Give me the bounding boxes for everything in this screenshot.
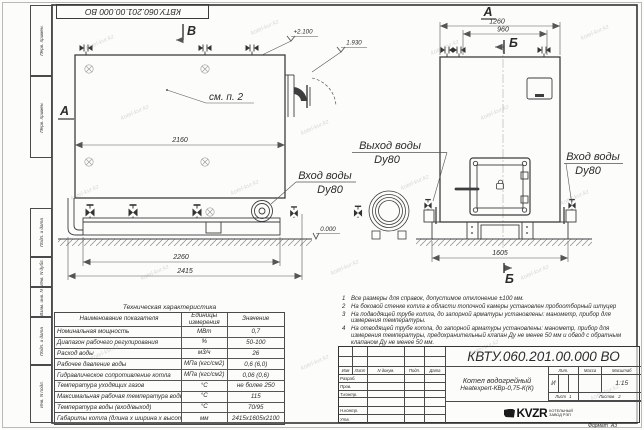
format-strip: Формат А3 xyxy=(588,423,638,429)
product-title: Котел водогрейный Heatexpert-КВр-0,75-К(… xyxy=(445,367,548,401)
margin-box-vzam-inv: Взам. инв. N xyxy=(30,287,52,317)
row-units: °С xyxy=(182,403,228,413)
tech-characteristics-table: Техническая характеристика Наименование … xyxy=(54,303,285,425)
kvzr-logo-icon xyxy=(504,409,515,418)
note-number: 3 xyxy=(342,312,351,326)
elevation-0000: 0.000 xyxy=(320,226,336,233)
product-model: Heatexpert-КВр-0,75-К(К) xyxy=(460,385,533,392)
margin-label: Подп. и дата xyxy=(39,327,44,356)
note-number: 4 xyxy=(342,326,351,346)
sheet-value: 1 xyxy=(569,394,571,399)
organization-cell: KVZR КОТЕЛЬНЫЙ ЗАВОД РЭП xyxy=(445,401,641,424)
air-vent-icon xyxy=(453,47,466,58)
fan-front-view xyxy=(369,191,409,239)
col-data: Дата xyxy=(425,367,445,375)
row-label: Т.контр. xyxy=(339,391,368,398)
dim-2415: 2415 xyxy=(176,268,193,275)
section-letter-b-bottom: Б xyxy=(505,272,514,286)
row-name: Расход воды xyxy=(55,349,182,359)
lifting-lug-icon xyxy=(206,208,214,216)
water-inlet-stub-front xyxy=(564,200,576,224)
view-letter-a: А xyxy=(482,5,492,19)
boiler-body-side xyxy=(75,55,285,198)
row-label: Н.контр. xyxy=(339,407,368,415)
inspection-hatch xyxy=(527,78,552,99)
notes-list: 1Все размеры для справок, допустимое отк… xyxy=(342,296,628,348)
product-name: Котел водогрейный xyxy=(463,376,531,385)
inlet-label-front: Вход воды xyxy=(566,151,619,163)
row-value: 0,06 (0,6) xyxy=(228,370,285,380)
table-row: Габариты котла (длина х ширина х высота)… xyxy=(55,413,284,424)
top-stamp-number: КВТУ.060.201.00.000 ВО xyxy=(85,7,181,17)
drain-valve-icon xyxy=(193,205,202,218)
format-label: Формат xyxy=(588,423,608,429)
dim-2160: 2160 xyxy=(171,137,188,144)
scale-value: 1:15 xyxy=(602,375,641,393)
row-name: Габариты котла (длина х ширина х высота) xyxy=(55,413,182,424)
note-text: На подводящей трубе котла, до запорной а… xyxy=(351,312,628,326)
row-units: % xyxy=(182,338,228,348)
pipe-valve-icon xyxy=(354,206,362,218)
col-header-value: Значение xyxy=(228,313,285,326)
section-mark-b-top xyxy=(495,40,504,54)
top-rotated-stamp: КВТУ.060.201.00.000 ВО xyxy=(56,4,209,19)
row-value: не более 250 xyxy=(228,381,285,391)
row-units: °С xyxy=(182,392,228,402)
margin-label: Инв. N дубл. xyxy=(39,259,44,286)
drain-valve-icon xyxy=(86,205,95,218)
signature-row-utv: Утв. xyxy=(339,415,445,424)
logo-sub-line: ЗАВОД РЭП xyxy=(549,413,573,417)
table-row: Расход водым3/ч26 xyxy=(55,349,284,360)
title-block: КВТУ.060.201.00.000 ВО Изм Лист N докум.… xyxy=(338,346,640,423)
inlet-dn-side: Dy80 xyxy=(317,184,344,196)
water-outlet-stub-front xyxy=(424,200,436,224)
row-units: мм xyxy=(182,413,228,424)
lifting-lug-icon xyxy=(201,158,209,166)
elevation-mark-top xyxy=(262,36,318,55)
row-units: МПа (кгс/см2) xyxy=(182,359,228,369)
note-item: 4На отводящей трубе котла, до запорной а… xyxy=(342,326,628,346)
margin-box-podp-data-2: Подп. и дата xyxy=(30,317,52,365)
lit-value: И xyxy=(549,375,559,393)
see-item-note: см. п. 2 xyxy=(209,92,243,103)
dim-960: 960 xyxy=(497,27,509,34)
section-letter-b-top: Б xyxy=(509,36,518,50)
row-value: 50-100 xyxy=(228,338,285,348)
margin-label: Инв. N подл. xyxy=(39,381,44,408)
sheets-value: 2 xyxy=(618,394,620,399)
water-inlet-callout-side xyxy=(271,182,356,204)
ground-line xyxy=(58,239,592,246)
table-row: Температура воды (вход/выход)°С70/95 xyxy=(55,403,284,414)
note-text: Все размеры для справок, допустимое откл… xyxy=(351,296,628,303)
lifting-lug-icon xyxy=(201,65,209,73)
signature-row-razrab: Разраб. xyxy=(339,375,445,383)
col-header-name: Наименование показателя xyxy=(55,313,182,326)
note-item: 3На подводящей трубе котла, до запорной … xyxy=(342,312,628,326)
row-name: Номинальная мощность xyxy=(55,327,182,337)
lifting-lug-icon xyxy=(85,65,93,73)
note-text: На отводящей трубе котла, до запорной ар… xyxy=(351,326,628,346)
col-podp: Подп. xyxy=(405,367,425,375)
lifting-lug-icon xyxy=(85,158,93,166)
col-ndok: N докум. xyxy=(368,367,405,375)
dim-1605: 1605 xyxy=(492,250,508,257)
note-item: 2На боковой стенке котла в области топоч… xyxy=(342,304,628,311)
row-value: 2415х1605х2100 xyxy=(228,413,285,424)
row-label: Пров. xyxy=(339,383,368,391)
lock-icon xyxy=(497,180,504,189)
air-vent-icon xyxy=(199,45,212,56)
row-label: Разраб. xyxy=(339,375,368,383)
table-row: Рабочее давление водыМПа (кгс/см2)0,6 (6… xyxy=(55,359,284,370)
sheets-label: Листов xyxy=(599,394,614,399)
sheet-label: Лист xyxy=(555,394,566,399)
dim-2260: 2260 xyxy=(172,254,189,261)
signature-row-tkontr: Т.контр. xyxy=(339,391,445,398)
elevation-1930: 1.930 xyxy=(346,40,362,47)
format-value: А3 xyxy=(611,423,617,429)
furnace-door xyxy=(456,158,530,215)
boiler-front-view xyxy=(424,44,576,250)
doc-number-stamp: КВТУ.060.201.00.000 ВО xyxy=(445,347,641,367)
signature-row-blank xyxy=(339,398,445,407)
note-text: На боковой стенке котла в области топочн… xyxy=(351,304,628,311)
drawing-sheet: 2160 2260 2415 В А см. п. 2 +2.100 xyxy=(0,0,644,430)
row-value: 26 xyxy=(228,349,285,359)
revision-grid-row xyxy=(339,347,445,357)
margin-label: Перв. примен. xyxy=(39,102,44,133)
kvzr-logo-text: KVZR xyxy=(517,406,548,420)
lit-header: Лит. xyxy=(549,367,579,375)
flue-connection xyxy=(285,75,336,117)
tech-table-title: Техническая характеристика xyxy=(54,303,285,312)
row-value: 70/95 xyxy=(228,403,285,413)
front-base xyxy=(432,222,568,239)
inlet-dn-front: Dy80 xyxy=(575,165,602,177)
table-row: Номинальная мощностьМВт0,7 xyxy=(55,327,284,338)
lit-mass-scale-header: Лит. Масса Масштаб xyxy=(548,367,641,375)
row-name: Температура воды (вход/выход) xyxy=(55,403,182,413)
boiler-side-view xyxy=(68,45,336,236)
note-item: 1Все размеры для справок, допустимое отк… xyxy=(342,296,628,303)
section-letter-a-left: А xyxy=(59,104,69,118)
boiler-body-front xyxy=(440,57,560,222)
table-row: Гидравлическое сопротивление котлаМПа (к… xyxy=(55,370,284,381)
outlet-label: Выход воды xyxy=(359,140,421,152)
table-row: Температура уходящих газов°Сне более 250 xyxy=(55,381,284,392)
signature-row-prov: Пров. xyxy=(339,383,445,391)
air-vent-icon xyxy=(80,45,93,56)
inlet-label-side: Вход воды xyxy=(298,170,351,182)
drain-valve-icon xyxy=(129,205,138,218)
note-number: 1 xyxy=(342,296,351,303)
margin-box-inv-dubl: Инв. N дубл. xyxy=(30,257,52,287)
lit-mass-scale-values: И 1:15 xyxy=(548,375,641,393)
kvzr-logo-subtitle: КОТЕЛЬНЫЙ ЗАВОД РЭП xyxy=(549,409,573,417)
elevation-mark-zero xyxy=(313,233,340,239)
row-label: Утв. xyxy=(339,415,368,424)
boiler-base-side xyxy=(68,198,280,235)
air-vent-icon xyxy=(246,45,259,56)
col-list: Лист xyxy=(353,367,368,375)
margin-box-podp-data-1: Подп. и дата xyxy=(30,208,52,257)
air-vent-icon xyxy=(538,47,551,58)
tech-table-grid: Наименование показателя Единицы измерени… xyxy=(54,312,285,425)
scale-header: Масштаб xyxy=(602,367,641,375)
row-name: Температура уходящих газов xyxy=(55,381,182,391)
section-letter-v: В xyxy=(187,24,196,38)
section-mark-v xyxy=(176,24,183,40)
title-block-header-row: Изм Лист N докум. Подп. Дата xyxy=(339,367,445,375)
note-number: 2 xyxy=(342,304,351,311)
row-name: Диапазон рабочего регулирования xyxy=(55,338,182,348)
row-units: м3/ч xyxy=(182,349,228,359)
row-units: °С xyxy=(182,381,228,391)
row-name: Рабочее давление воды xyxy=(55,359,182,369)
row-value: 0,6 (6,0) xyxy=(228,359,285,369)
elevation-mark-flue xyxy=(312,47,367,72)
table-row: Максимальная рабочая температура воды°С1… xyxy=(55,392,284,403)
row-value: 0,7 xyxy=(228,327,285,337)
row-units: МПа (кгс/см2) xyxy=(182,370,228,380)
margin-label: Перв. примен. xyxy=(39,25,44,56)
margin-box-perv-primen-1: Перв. примен. xyxy=(30,5,52,76)
row-units: МВт xyxy=(182,327,228,337)
row-name: Максимальная рабочая температура воды xyxy=(55,392,182,402)
row-value: 115 xyxy=(228,392,285,402)
table-row: Диапазон рабочего регулирования%50-100 xyxy=(55,338,284,349)
outlet-dn: Dy80 xyxy=(374,154,401,166)
air-vent-icon xyxy=(441,47,454,58)
water-inlet-flange-side xyxy=(252,201,273,222)
sheet-count-row: Лист 1 Листов 2 xyxy=(548,393,641,401)
margin-label: Взам. инв. N xyxy=(39,289,44,316)
front-view-dimensions xyxy=(432,22,568,262)
mass-header: Масса xyxy=(579,367,603,375)
row-name: Гидравлическое сопротивление котла xyxy=(55,370,182,380)
signature-row-nkontr: Н.контр. xyxy=(339,407,445,415)
col-izm: Изм xyxy=(339,367,353,375)
elevation-2100: +2.100 xyxy=(293,29,313,36)
side-valve-icon xyxy=(290,207,298,218)
revision-grid-row xyxy=(339,357,445,367)
tech-table-header-row: Наименование показателя Единицы измерени… xyxy=(55,313,284,327)
margin-box-perv-primen-2: Перв. примен. xyxy=(30,76,52,158)
col-header-units: Единицы измерения xyxy=(182,313,228,326)
margin-label: Подп. и дата xyxy=(39,218,44,247)
margin-box-inv-podl: Инв. N подл. xyxy=(30,365,52,423)
